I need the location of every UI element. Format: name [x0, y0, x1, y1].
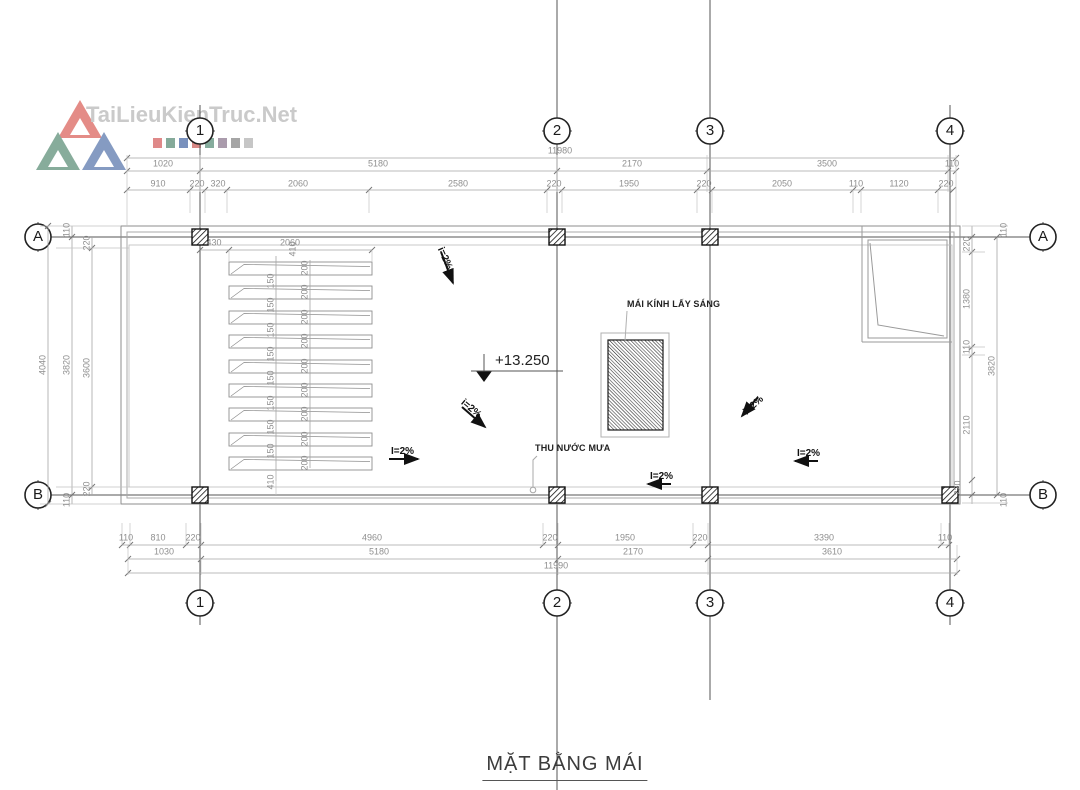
- dim-slat-gap: 150: [267, 419, 276, 434]
- grid-row-b-left: B: [33, 487, 43, 502]
- roof-plan-drawing: TaiLieuKienTruc.Net: [0, 0, 1080, 790]
- dim-top-minor: 1950: [619, 180, 639, 189]
- roof-void: [862, 226, 952, 342]
- dim-right-small: 110: [1000, 493, 1009, 507]
- dim-left-chain: 3820: [63, 355, 72, 375]
- dim-slat-height: 200: [301, 455, 310, 470]
- dim-top-minor: 2580: [448, 180, 468, 189]
- grid-row-a-right: A: [1038, 229, 1048, 244]
- dim-slat-gap: 150: [267, 297, 276, 312]
- plan-linework: [0, 0, 1080, 790]
- skylight: [601, 311, 669, 437]
- dim-top-minor: 2050: [772, 180, 792, 189]
- dim-slat-height: 200: [301, 284, 310, 299]
- dim-top-minor: 220: [938, 180, 953, 189]
- dim-bottom-overall: 11990: [544, 562, 568, 571]
- dim-bottom-minor: 3390: [814, 534, 834, 543]
- dim-right-overall: 3820: [988, 356, 997, 376]
- dim-slat-gap: 150: [267, 273, 276, 288]
- dim-top-overall: 11980: [548, 147, 572, 156]
- grid-row-a-left: A: [33, 229, 43, 244]
- dim-slat-gap: 150: [267, 346, 276, 361]
- dim-top-minor: 1120: [889, 180, 908, 189]
- slope-label-6: I=2%: [797, 449, 820, 459]
- drawing-title: MẶT BẰNG MÁI: [482, 753, 647, 781]
- dim-slat-height: 200: [301, 382, 310, 397]
- dim-top-minor: 2060: [288, 180, 308, 189]
- dim-slat-gap: 150: [267, 322, 276, 337]
- dim-bottom-minor: 1950: [615, 534, 635, 543]
- slope-label-3: I=2%: [391, 447, 414, 457]
- dim-slat-height: 200: [301, 431, 310, 446]
- dim-top-major: 2170: [622, 160, 642, 169]
- dim-slat-gap: 150: [267, 395, 276, 410]
- grid-axis-lines: [25, 0, 1056, 790]
- dim-bottom-minor: 220: [692, 534, 707, 543]
- dim-top-minor: 220: [189, 180, 204, 189]
- dim-slat-gap: 150: [267, 443, 276, 458]
- dim-left-small: 110: [63, 493, 72, 507]
- dim-slat-height: 200: [301, 406, 310, 421]
- dim-right-chain: 2110: [963, 415, 972, 434]
- dim-bottom-minor: 110: [938, 534, 952, 543]
- dim-slat-gap: 150: [267, 370, 276, 385]
- dim-bottom-minor: 810: [150, 534, 165, 543]
- level-label: +13.250: [495, 353, 550, 368]
- dim-left-small: 220: [83, 481, 92, 496]
- dim-right-small: 110: [1000, 223, 1009, 237]
- dim-right-chain: 1380: [963, 289, 972, 309]
- dim-top-minor: 320: [210, 180, 225, 189]
- dim-bottom-minor: 110: [119, 534, 133, 543]
- dim-top-major: 1020: [153, 160, 173, 169]
- slope-label-5: I=2%: [650, 472, 673, 482]
- skylight-label: MÁI KÍNH LẤY SÁNG: [627, 300, 720, 309]
- dim-top-minor: 910: [150, 180, 165, 189]
- dim-top-minor: 220: [546, 180, 561, 189]
- dim-left-chain: 3600: [83, 358, 92, 378]
- grid-col-2-top: 2: [553, 123, 561, 138]
- dim-slat-bottom: 410: [267, 474, 276, 489]
- dim-bottom-major: 5180: [369, 548, 389, 557]
- dim-left-chain: 4040: [39, 355, 48, 375]
- grid-col-3-top: 3: [706, 123, 714, 138]
- dim-bottom-minor: 220: [185, 534, 200, 543]
- dim-left-small: 110: [63, 223, 72, 237]
- dim-slat-height: 200: [301, 260, 310, 275]
- dim-bottom-major: 3610: [822, 548, 842, 557]
- rainwater-label: THU NƯỚC MƯA: [535, 444, 611, 453]
- dim-slat-top: 410: [289, 241, 298, 256]
- dim-bottom-minor: 4960: [362, 534, 382, 543]
- grid-col-2-bottom: 2: [553, 595, 561, 610]
- grid-col-4-bottom: 4: [946, 595, 954, 610]
- dim-bottom-major: 2170: [623, 548, 643, 557]
- dim-bottom-minor: 220: [542, 534, 557, 543]
- dim-right-small: 220: [954, 480, 963, 495]
- grid-row-b-right: B: [1038, 487, 1048, 502]
- dim-left-small: 220: [83, 235, 92, 250]
- dim-slat-height: 200: [301, 309, 310, 324]
- grid-col-1-bottom: 1: [196, 595, 204, 610]
- dim-right-chain: 110: [963, 340, 972, 354]
- dim-right-chain: 220: [963, 236, 972, 251]
- dim-top-minor: 220: [696, 180, 711, 189]
- dim-top-minor: 110: [849, 180, 863, 189]
- dim-slat-height: 200: [301, 333, 310, 348]
- dim-slat-offset: 430: [206, 239, 221, 248]
- dim-bottom-major: 1030: [154, 548, 174, 557]
- grid-col-1-top: 1: [196, 123, 204, 138]
- dim-top-major: 3500: [817, 160, 837, 169]
- dim-slat-height: 200: [301, 358, 310, 373]
- dim-top-major: 5180: [368, 160, 388, 169]
- dim-top-major: 110: [945, 160, 959, 169]
- grid-col-3-bottom: 3: [706, 595, 714, 610]
- grid-col-4-top: 4: [946, 123, 954, 138]
